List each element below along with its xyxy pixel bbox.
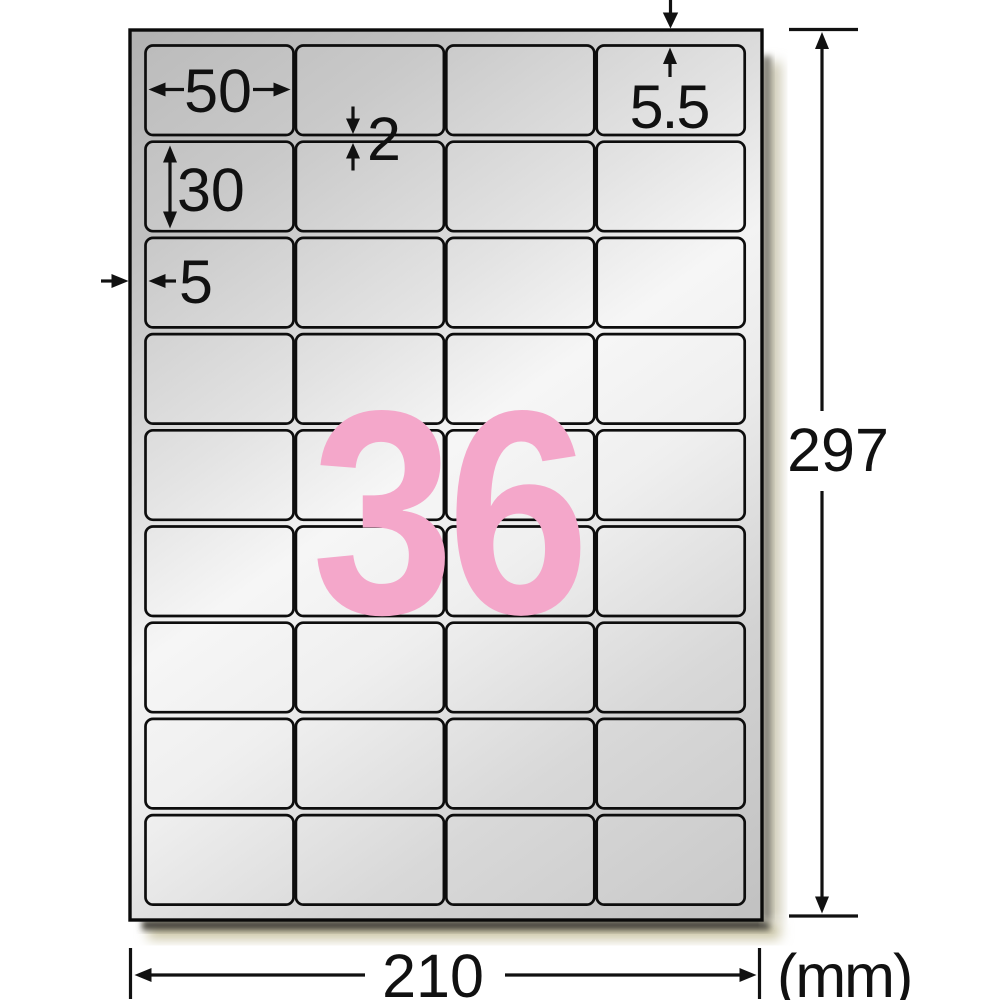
svg-text:36: 36 — [312, 351, 584, 675]
svg-text:5.5: 5.5 — [630, 73, 709, 141]
svg-text:297: 297 — [787, 416, 889, 484]
svg-text:(mm): (mm) — [777, 942, 911, 1000]
svg-text:210: 210 — [382, 942, 484, 1000]
svg-text:2: 2 — [367, 105, 401, 173]
svg-text:30: 30 — [177, 156, 245, 224]
svg-text:5: 5 — [179, 248, 213, 316]
svg-text:50: 50 — [184, 57, 252, 125]
